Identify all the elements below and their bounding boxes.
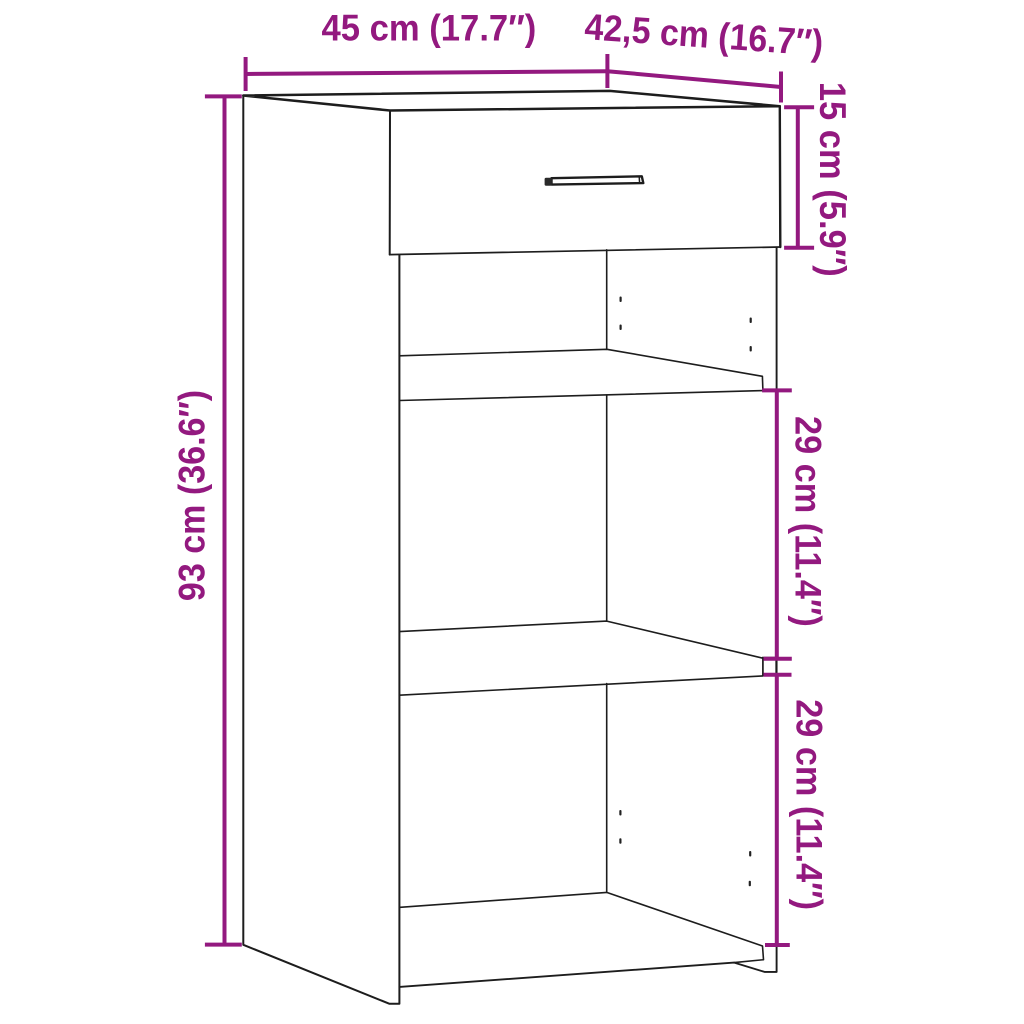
svg-text:45 cm (17.7″): 45 cm (17.7″) (321, 7, 536, 48)
svg-text:29 cm (11.4″): 29 cm (11.4″) (788, 699, 829, 910)
svg-text:29 cm (11.4″): 29 cm (11.4″) (787, 416, 828, 627)
svg-text:93 cm (36.6″): 93 cm (36.6″) (171, 390, 213, 601)
svg-text:15 cm (5.9″): 15 cm (5.9″) (812, 82, 853, 277)
